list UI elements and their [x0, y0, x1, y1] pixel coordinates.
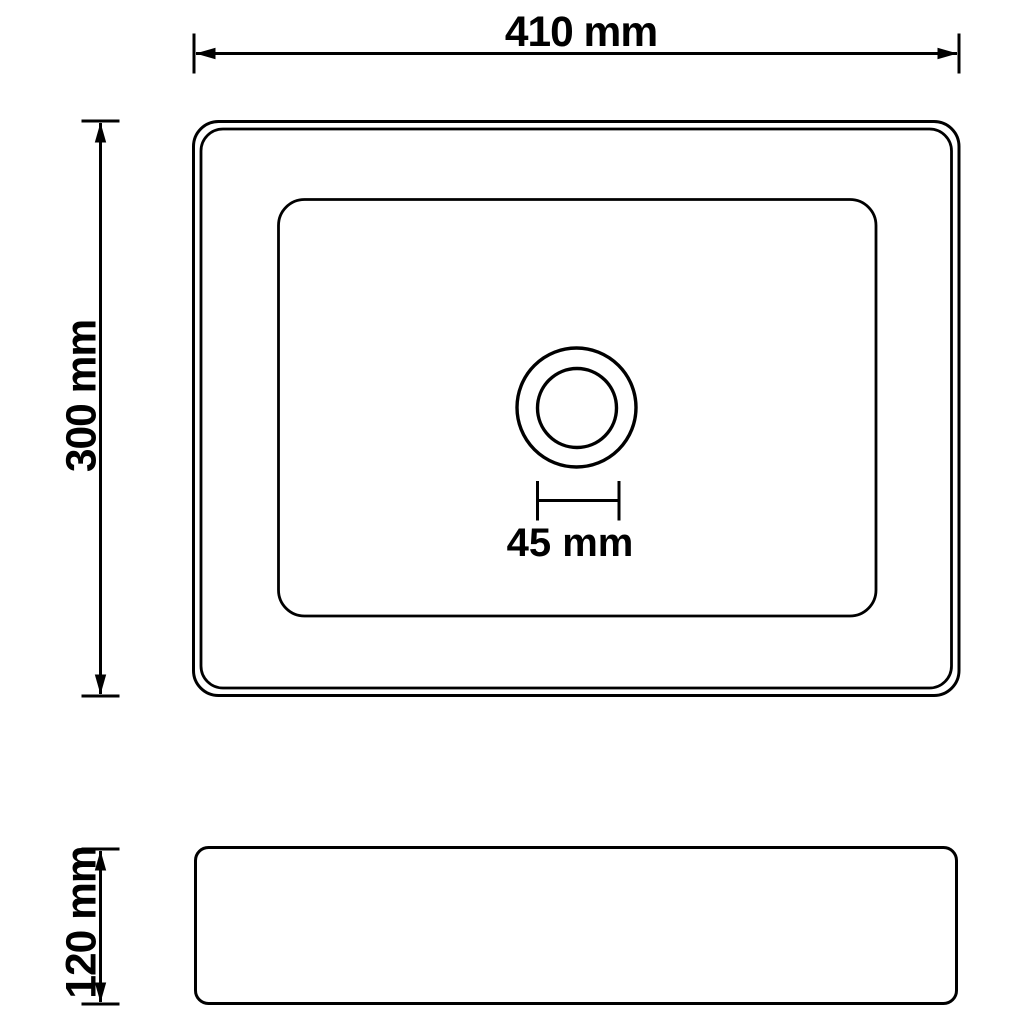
svg-text:120 mm: 120 mm: [59, 846, 106, 998]
svg-text:300 mm: 300 mm: [59, 320, 106, 472]
svg-text:410 mm: 410 mm: [505, 9, 657, 56]
svg-text:45 mm: 45 mm: [507, 521, 634, 565]
